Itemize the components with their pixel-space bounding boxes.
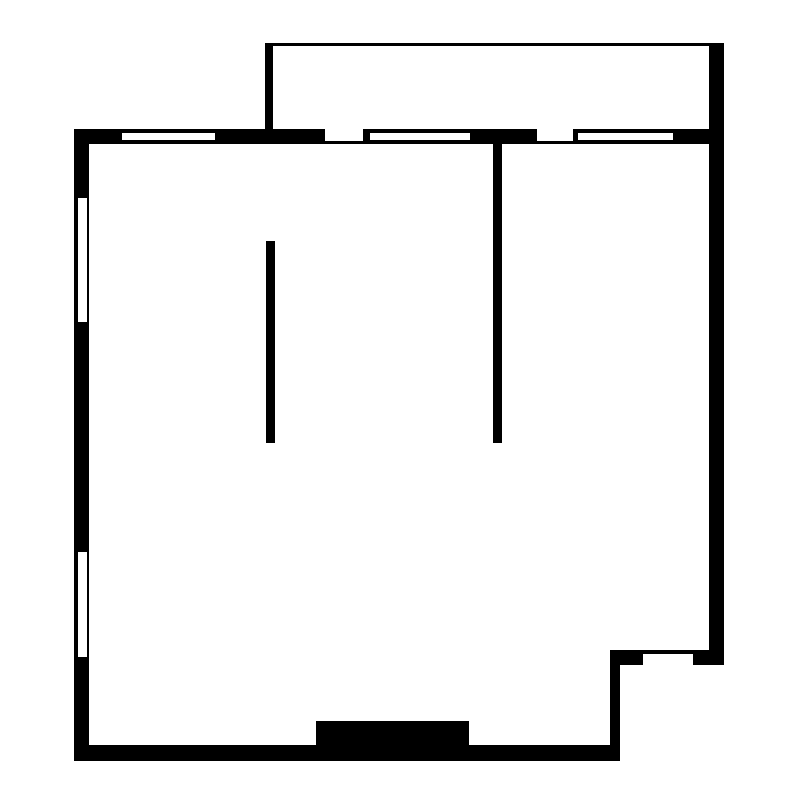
floorplan-canvas <box>0 0 800 800</box>
door-opening-top-2 <box>537 129 573 141</box>
entry-block <box>316 721 469 761</box>
balcony-left-wall <box>265 43 273 129</box>
right-exterior-wall <box>709 43 724 665</box>
window-left-2 <box>78 552 87 657</box>
window-top-3 <box>578 133 673 140</box>
door-opening-top-1 <box>325 129 363 141</box>
window-left-1 <box>78 198 87 322</box>
door-opening-notch <box>643 654 693 665</box>
notch-vertical-wall <box>610 650 620 761</box>
window-top-2 <box>370 133 470 140</box>
window-top-1 <box>122 133 215 140</box>
interior-partition-left <box>266 241 275 443</box>
interior-partition-right <box>493 143 502 443</box>
balcony-top-wall <box>265 43 724 46</box>
